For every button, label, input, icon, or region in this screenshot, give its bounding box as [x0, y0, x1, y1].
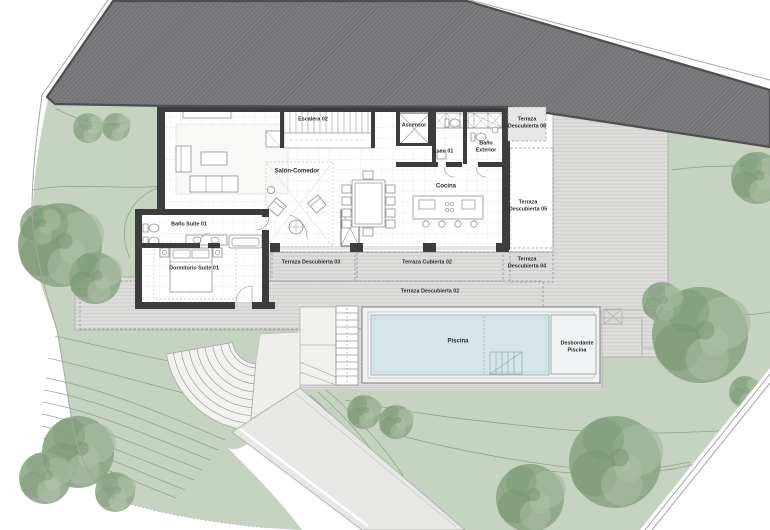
tree: [496, 464, 566, 530]
pool-exterior-stair: [300, 306, 358, 385]
stool: [423, 221, 429, 227]
terraza-descubierta-06-outline: [508, 107, 546, 141]
pool-overflow-channel: [551, 315, 596, 374]
floor-plan-canvas: Escalera 02 Ascensor Aseo 01 Baño Exteri…: [0, 0, 770, 530]
site-plan-drawing: [0, 0, 770, 530]
stool: [471, 221, 477, 227]
elevator: [399, 113, 430, 145]
kitchen-island: [413, 196, 483, 219]
stool: [455, 221, 461, 227]
stool: [439, 221, 445, 227]
